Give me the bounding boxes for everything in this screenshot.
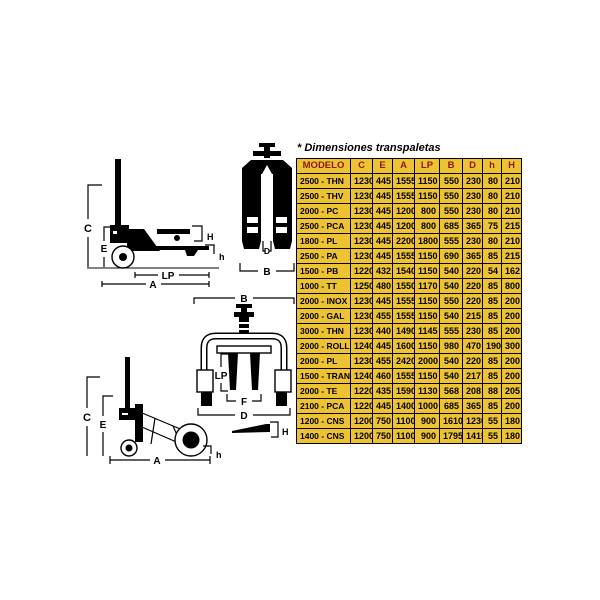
table-row: 3000 - THN12304401490114555523085200 [297, 324, 522, 339]
value-cell: 210 [502, 174, 522, 189]
value-cell: 1240 [351, 339, 373, 354]
value-cell: 215 [463, 309, 483, 324]
value-cell: 300 [502, 339, 522, 354]
model-cell: 2000 - INOX [297, 294, 351, 309]
dim-label-a: A [153, 456, 160, 467]
value-cell: 900 [415, 429, 440, 444]
value-cell: 1150 [415, 189, 440, 204]
model-cell: 2500 - THV [297, 189, 351, 204]
value-cell: 440 [373, 324, 393, 339]
table-row: 2000 - PC1230445120080055023080210 [297, 204, 522, 219]
diagram-fork-height-symbol: H [230, 418, 292, 450]
value-cell: 470 [463, 339, 483, 354]
value-cell: 1100 [393, 414, 415, 429]
model-cell: 2000 - GAL [297, 309, 351, 324]
value-cell: 550 [440, 174, 463, 189]
value-cell: 85 [483, 294, 502, 309]
value-cell: 1230 [351, 309, 373, 324]
diagram-highlift-side-view: C E h A [55, 352, 225, 467]
value-cell: 200 [502, 324, 522, 339]
diagram-forks-top-view: D B [238, 141, 296, 289]
value-cell: 85 [483, 399, 502, 414]
model-cell: 2500 - PA [297, 249, 351, 264]
value-cell: 190 [483, 339, 502, 354]
value-cell: 210 [502, 189, 522, 204]
dim-label-h: h [216, 450, 222, 460]
value-cell: 1795 [440, 429, 463, 444]
value-cell: 210 [502, 204, 522, 219]
table-row: 2000 - INOX12304451555115055022085200 [297, 294, 522, 309]
value-cell: 1150 [415, 294, 440, 309]
value-cell: 1150 [415, 174, 440, 189]
table-row: 2000 - ROLL124044516001150980470190300 [297, 339, 522, 354]
dim-label-d: D [264, 246, 270, 256]
value-cell: 1150 [415, 369, 440, 384]
value-cell: 1240 [351, 369, 373, 384]
value-cell: 85 [483, 354, 502, 369]
value-cell: 54 [483, 264, 502, 279]
model-cell: 2000 - PL [297, 354, 351, 369]
model-cell: 2000 - ROLL [297, 339, 351, 354]
value-cell: 540 [440, 354, 463, 369]
table-row: 1500 - TRANS12404601555115054021785200 [297, 369, 522, 384]
dim-label-b: B [263, 267, 270, 278]
value-cell: 200 [502, 399, 522, 414]
value-cell: 445 [373, 399, 393, 414]
value-cell: 200 [502, 309, 522, 324]
value-cell: 220 [463, 354, 483, 369]
value-cell: 550 [440, 189, 463, 204]
value-cell: 540 [440, 369, 463, 384]
value-cell: 230 [463, 204, 483, 219]
value-cell: 1610 [440, 414, 463, 429]
value-cell: 1230 [351, 249, 373, 264]
table-row: 1400 - CNS120075011009001795141555180 [297, 429, 522, 444]
column-header-h: h [483, 159, 502, 174]
diagram-pallet-truck-side-view: C E H h LP A [57, 145, 232, 290]
value-cell: 1200 [351, 429, 373, 444]
value-cell: 220 [463, 294, 483, 309]
value-cell: 88 [483, 384, 502, 399]
value-cell: 220 [463, 279, 483, 294]
value-cell: 217 [463, 369, 483, 384]
column-header-a: A [393, 159, 415, 174]
value-cell: 435 [373, 384, 393, 399]
value-cell: 445 [373, 339, 393, 354]
model-cell: 1800 - PL [297, 234, 351, 249]
table-row: 2000 - PL12304552420200054022085200 [297, 354, 522, 369]
value-cell: 568 [440, 384, 463, 399]
dimensions-table-wrap: MODELOCEALPBDhH 2500 - THN12304451555115… [296, 158, 522, 444]
value-cell: 1100 [393, 429, 415, 444]
value-cell: 55 [483, 429, 502, 444]
value-cell: 1230 [351, 219, 373, 234]
value-cell: 210 [502, 234, 522, 249]
value-cell: 540 [440, 264, 463, 279]
column-header-lp: LP [415, 159, 440, 174]
value-cell: 445 [373, 234, 393, 249]
table-row: 1200 - CNS120075011009001610123055180 [297, 414, 522, 429]
value-cell: 1170 [415, 279, 440, 294]
value-cell: 1150 [415, 309, 440, 324]
table-row: 2500 - PCA1230445120080068536575215 [297, 219, 522, 234]
value-cell: 550 [440, 294, 463, 309]
value-cell: 2200 [393, 234, 415, 249]
value-cell: 230 [463, 234, 483, 249]
value-cell: 365 [463, 399, 483, 414]
table-row: 2000 - TE12204351590113056820888205 [297, 384, 522, 399]
value-cell: 555 [440, 234, 463, 249]
value-cell: 1250 [351, 279, 373, 294]
value-cell: 1150 [415, 264, 440, 279]
value-cell: 1000 [415, 399, 440, 414]
value-cell: 480 [373, 279, 393, 294]
value-cell: 800 [415, 204, 440, 219]
value-cell: 230 [463, 324, 483, 339]
value-cell: 1490 [393, 324, 415, 339]
value-cell: 1200 [351, 414, 373, 429]
value-cell: 445 [373, 174, 393, 189]
value-cell: 1555 [393, 309, 415, 324]
value-cell: 180 [502, 429, 522, 444]
dim-label-a: A [149, 280, 156, 290]
value-cell: 1220 [351, 384, 373, 399]
model-cell: 1200 - CNS [297, 414, 351, 429]
value-cell: 685 [440, 399, 463, 414]
value-cell: 750 [373, 429, 393, 444]
value-cell: 540 [440, 279, 463, 294]
value-cell: 1230 [463, 414, 483, 429]
value-cell: 215 [502, 249, 522, 264]
value-cell: 1230 [351, 294, 373, 309]
value-cell: 80 [483, 174, 502, 189]
value-cell: 200 [502, 294, 522, 309]
value-cell: 1550 [393, 279, 415, 294]
value-cell: 80 [483, 204, 502, 219]
value-cell: 365 [463, 249, 483, 264]
catalog-page: C E H h LP A [0, 0, 600, 600]
table-row: 2100 - PCA12204451400100068536585200 [297, 399, 522, 414]
value-cell: 980 [440, 339, 463, 354]
value-cell: 1150 [415, 339, 440, 354]
value-cell: 445 [373, 249, 393, 264]
table-header-row: MODELOCEALPBDhH [297, 159, 522, 174]
value-cell: 200 [502, 369, 522, 384]
value-cell: 750 [373, 414, 393, 429]
value-cell: 2420 [393, 354, 415, 369]
dim-label-b: B [240, 294, 247, 305]
value-cell: 690 [440, 249, 463, 264]
value-cell: 365 [463, 219, 483, 234]
value-cell: 900 [415, 414, 440, 429]
value-cell: 1150 [415, 249, 440, 264]
table-row: 1800 - PL12304452200180055523080210 [297, 234, 522, 249]
value-cell: 1230 [351, 354, 373, 369]
value-cell: 1555 [393, 294, 415, 309]
value-cell: 445 [373, 204, 393, 219]
value-cell: 230 [463, 174, 483, 189]
table-row: 2500 - PA12304451555115069036585215 [297, 249, 522, 264]
value-cell: 1600 [393, 339, 415, 354]
value-cell: 1220 [351, 264, 373, 279]
value-cell: 540 [440, 309, 463, 324]
dimensions-table: MODELOCEALPBDhH 2500 - THN12304451555115… [296, 158, 522, 444]
value-cell: 1590 [393, 384, 415, 399]
table-row: 2000 - GAL12304551555115054021585200 [297, 309, 522, 324]
model-cell: 2000 - PC [297, 204, 351, 219]
table-row: 2500 - THN12304451555115055023080210 [297, 174, 522, 189]
value-cell: 1555 [393, 174, 415, 189]
model-cell: 1500 - PB [297, 264, 351, 279]
value-cell: 550 [440, 204, 463, 219]
value-cell: 230 [463, 189, 483, 204]
value-cell: 85 [483, 309, 502, 324]
value-cell: 445 [373, 219, 393, 234]
value-cell: 200 [502, 354, 522, 369]
value-cell: 85 [483, 324, 502, 339]
column-header-d: D [463, 159, 483, 174]
dim-label-h-lowered: h [219, 252, 225, 262]
model-cell: 1000 - TT [297, 279, 351, 294]
value-cell: 800 [502, 279, 522, 294]
value-cell: 1230 [351, 204, 373, 219]
value-cell: 555 [440, 324, 463, 339]
column-header-c: C [351, 159, 373, 174]
model-cell: 1500 - TRANS [297, 369, 351, 384]
value-cell: 162 [502, 264, 522, 279]
value-cell: 1400 [393, 399, 415, 414]
value-cell: 1800 [415, 234, 440, 249]
value-cell: 1200 [393, 219, 415, 234]
column-header-h: H [502, 159, 522, 174]
model-cell: 2100 - PCA [297, 399, 351, 414]
model-cell: 2500 - THN [297, 174, 351, 189]
value-cell: 1220 [351, 399, 373, 414]
table-row: 2500 - THV12304451555115055023080210 [297, 189, 522, 204]
value-cell: 220 [463, 264, 483, 279]
dim-label-h: H [282, 427, 289, 437]
dim-label-lp: LP [162, 271, 175, 282]
value-cell: 85 [483, 249, 502, 264]
value-cell: 1230 [351, 189, 373, 204]
value-cell: 460 [373, 369, 393, 384]
dim-label-e: E [101, 244, 108, 255]
table-row: 1000 - TT12504801550117054022085800 [297, 279, 522, 294]
value-cell: 85 [483, 279, 502, 294]
column-header-b: B [440, 159, 463, 174]
dim-label-c: C [84, 223, 92, 235]
value-cell: 432 [373, 264, 393, 279]
column-header-modelo: MODELO [297, 159, 351, 174]
value-cell: 1555 [393, 189, 415, 204]
dim-label-h-raised: H [207, 232, 214, 242]
dim-label-c: C [83, 412, 91, 424]
value-cell: 445 [373, 294, 393, 309]
column-header-e: E [373, 159, 393, 174]
value-cell: 1145 [415, 324, 440, 339]
value-cell: 1555 [393, 369, 415, 384]
value-cell: 1230 [351, 234, 373, 249]
value-cell: 1555 [393, 249, 415, 264]
value-cell: 1200 [393, 204, 415, 219]
value-cell: 445 [373, 189, 393, 204]
value-cell: 2000 [415, 354, 440, 369]
value-cell: 55 [483, 414, 502, 429]
value-cell: 455 [373, 309, 393, 324]
model-cell: 2000 - TE [297, 384, 351, 399]
value-cell: 75 [483, 219, 502, 234]
model-cell: 3000 - THN [297, 324, 351, 339]
value-cell: 205 [502, 384, 522, 399]
value-cell: 208 [463, 384, 483, 399]
value-cell: 455 [373, 354, 393, 369]
model-cell: 1400 - CNS [297, 429, 351, 444]
value-cell: 80 [483, 234, 502, 249]
value-cell: 685 [440, 219, 463, 234]
value-cell: 1540 [393, 264, 415, 279]
value-cell: 215 [502, 219, 522, 234]
dim-label-e: E [100, 420, 107, 431]
value-cell: 80 [483, 189, 502, 204]
value-cell: 1230 [351, 324, 373, 339]
model-cell: 2500 - PCA [297, 219, 351, 234]
page-title: * Dimensiones transpaletas [297, 142, 441, 154]
value-cell: 180 [502, 414, 522, 429]
value-cell: 1130 [415, 384, 440, 399]
value-cell: 85 [483, 369, 502, 384]
dim-label-f: F [241, 397, 247, 408]
value-cell: 1415 [463, 429, 483, 444]
value-cell: 1230 [351, 174, 373, 189]
table-row: 1500 - PB12204321540115054022054162 [297, 264, 522, 279]
value-cell: 800 [415, 219, 440, 234]
